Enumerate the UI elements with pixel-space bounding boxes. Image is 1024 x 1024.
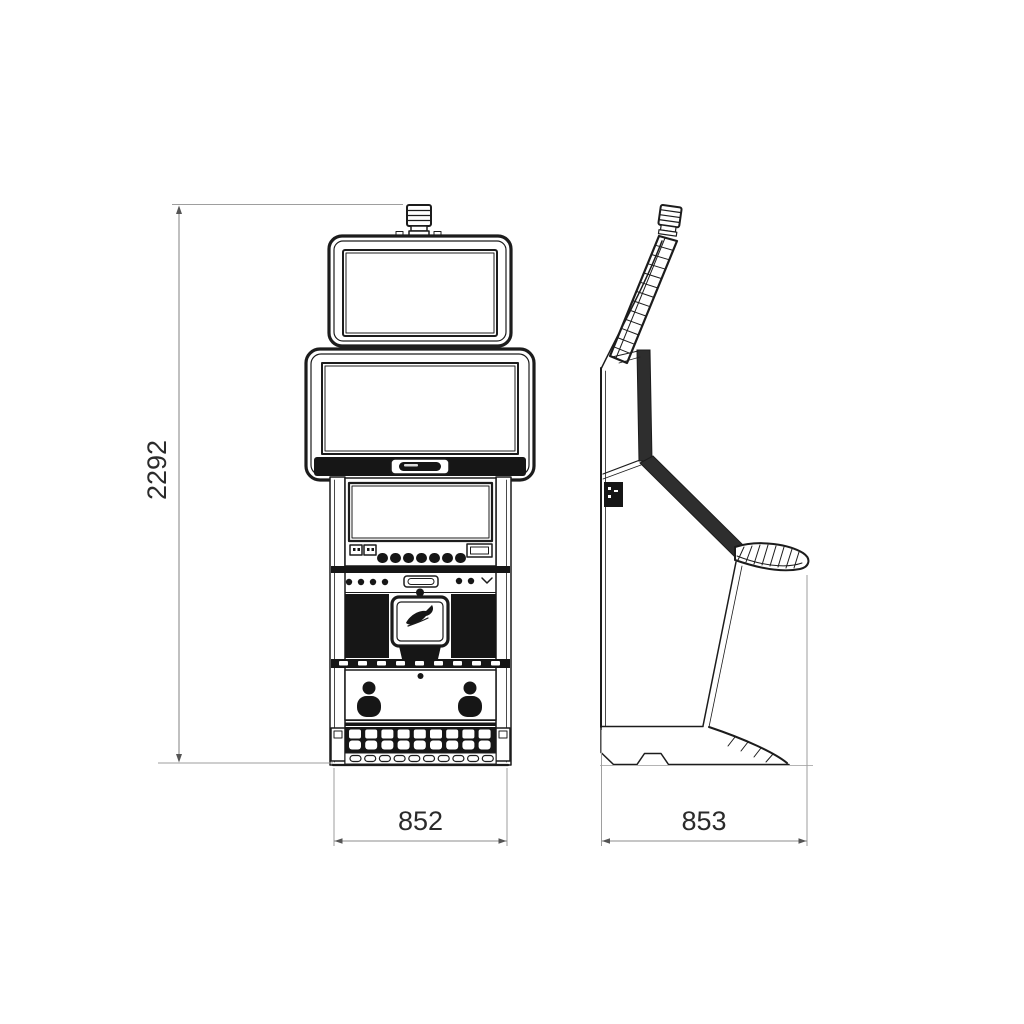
- bill-acceptor: [404, 576, 438, 587]
- dimension-side-depth: 853: [602, 575, 808, 846]
- technical-drawing: 2292 852 853: [0, 0, 1024, 1024]
- topper-display: [329, 236, 511, 346]
- brand-emblem-frame: [392, 589, 448, 660]
- deck-switch-left: [350, 545, 362, 555]
- deck-switch-right: [364, 545, 376, 555]
- upper-screens-side-profile: [610, 236, 677, 363]
- dash-separator: [331, 659, 510, 668]
- front-view: [306, 205, 534, 765]
- side-view: [600, 205, 813, 766]
- back-bracket: [604, 482, 623, 507]
- deck-edge-band: [331, 566, 510, 573]
- front-door-side-edge: [703, 562, 736, 726]
- button-deck-side-profile: [735, 543, 808, 570]
- height-dimension-label: 2292: [142, 440, 172, 500]
- side-depth-dimension-label: 853: [681, 806, 726, 836]
- vent-slot-row-1: [349, 730, 491, 739]
- mid-panel-side-profile: [640, 456, 748, 559]
- speaker-grille-left: [345, 594, 389, 658]
- main-display: [306, 349, 534, 480]
- chevron-down-icon: [482, 578, 492, 583]
- main-door: [345, 670, 496, 726]
- vent-grille: [331, 727, 510, 765]
- tower-light-icon: [407, 205, 431, 236]
- emblem-pedestal: [399, 646, 441, 659]
- front-width-dimension-label: 852: [398, 806, 443, 836]
- vent-slot-row-2: [349, 741, 491, 750]
- bezel-control-pod: [391, 459, 449, 474]
- dimension-front-width: 852: [334, 768, 507, 846]
- base-side-profile: [600, 727, 813, 766]
- speaker-grille-right: [451, 594, 496, 658]
- main-screen-side-profile: [612, 350, 652, 461]
- tower-light-side-icon: [657, 205, 682, 237]
